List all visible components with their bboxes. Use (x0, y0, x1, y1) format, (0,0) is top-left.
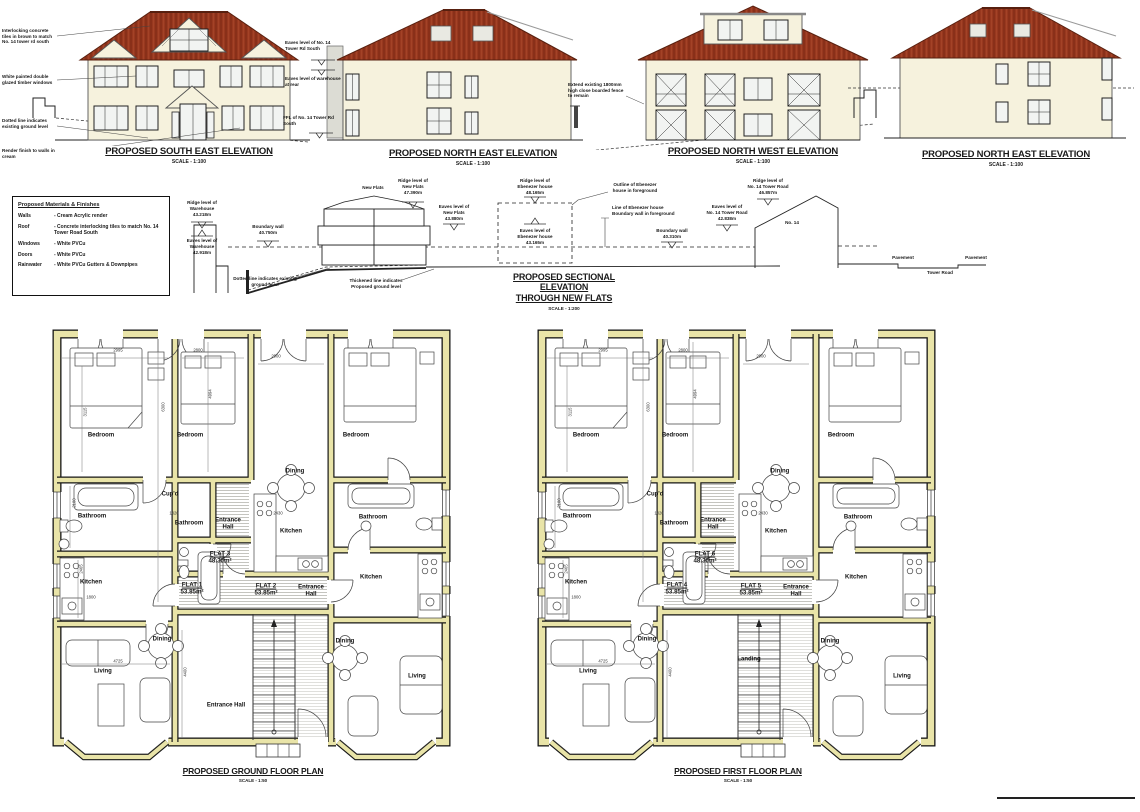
label-outline-ebenezer: Outline of Ebenezer house in foreground (613, 182, 658, 194)
ne1-building (309, 10, 583, 140)
legend-value: - White PVCu (54, 252, 165, 258)
room-label-cupboard: Cup'd (162, 492, 179, 499)
note-windows: White painted double glazed timber windo… (2, 74, 58, 85)
architectural-drawing-sheet: Interlocking concrete tiles in brown to … (0, 0, 1140, 812)
legend-item: Walls (18, 213, 54, 219)
north-west-elevation: Extend existing 1800mm high close boarde… (568, 0, 880, 172)
label-line-ebenezer: Line of Ebenezer house Boundary wall in … (612, 205, 675, 217)
room-label-dining: Dining (638, 637, 657, 644)
plan-title: PROPOSED GROUND FLOOR PLAN (48, 766, 458, 776)
south-east-elevation: Interlocking concrete tiles in brown to … (0, 0, 322, 172)
room-label-bathroom: Bathroom (175, 521, 203, 528)
note-eaves-warehouse: Eaves level of warehouse at rear (285, 76, 341, 87)
dimension: 2430 (273, 511, 282, 516)
north-west-elevation-drawing (568, 0, 880, 150)
materials-legend: Proposed Materials & Finishes Walls- Cre… (12, 196, 170, 296)
flat-label: FLAT 348.30m² (208, 551, 231, 566)
nw-building (570, 6, 874, 150)
room-label-bathroom: Bathroom (563, 514, 591, 521)
dimension: 4994 (693, 389, 698, 398)
note-existing-ground: Dotted line indicates existing ground le… (233, 276, 297, 288)
legend-item: Rainwater (18, 262, 54, 268)
legend-value: - White PVCu Gutters & Downpipes (54, 262, 165, 268)
room-label-kitchen: Kitchen (845, 575, 867, 582)
note-proposed-ground: Thickened line indicates Proposed ground… (349, 278, 402, 290)
room-label-bedroom: Bedroom (88, 433, 114, 440)
section-title-line2: THROUGH NEW FLATS (493, 293, 635, 303)
room-label-entrance-hall: Entrance Hall (783, 584, 809, 597)
label-eaves-warehouse: Eaves level of Warehouse 42.918m (187, 238, 217, 256)
dimension: 4400 (183, 667, 188, 676)
room-label-living: Living (94, 669, 112, 676)
room-label-kitchen: Kitchen (80, 580, 102, 587)
north-east-elevation-2-drawing (848, 0, 1140, 150)
label-no14: No. 14 (785, 220, 799, 226)
dimension: 6300 (161, 402, 166, 411)
ground-floor-plan-drawing (48, 312, 518, 762)
flat-name: FLAT 2 (254, 583, 277, 590)
room-label-kitchen: Kitchen (565, 580, 587, 587)
ne2-building (848, 8, 1134, 138)
dimension: 3115 (568, 407, 573, 416)
flat-name: FLAT 3 (208, 551, 231, 558)
legend-title: Proposed Materials & Finishes (18, 202, 165, 208)
flat-name: FLAT 6 (693, 551, 716, 558)
room-label-bathroom: Bathroom (660, 521, 688, 528)
room-label-dining: Dining (821, 639, 840, 646)
room-label-living: Living (408, 674, 426, 681)
room-label-bedroom: Bedroom (662, 433, 688, 440)
elevation-caption: PROPOSED NORTH WEST ELEVATION SCALE - 1:… (626, 146, 880, 165)
dimension: 2800 (193, 348, 202, 353)
label-eaves-ebenezer: Eaves level of Ebenezer house 43.165m (517, 228, 552, 246)
elevation-scale: SCALE - 1:100 (626, 159, 880, 165)
flat-area: 48.30m² (693, 558, 716, 565)
label-ridge-no14: Ridge level of No. 14 Tower Road 46.857m (747, 178, 788, 196)
room-label-kitchen: Kitchen (360, 575, 382, 582)
dimension: 6300 (646, 402, 651, 411)
room-label-cupboard: Cup'd (647, 492, 664, 499)
label-ridge-ebenezer: Ridge level of Ebenezer house 48.165m (517, 178, 552, 196)
room-label-bedroom: Bedroom (828, 433, 854, 440)
note-roof-tiles: Interlocking concrete tiles in brown to … (2, 28, 58, 45)
dimension: 4725 (113, 659, 122, 664)
room-label-dining: Dining (336, 639, 355, 646)
room-label-dining: Dining (153, 637, 172, 644)
room-label-landing: Landing (737, 657, 760, 664)
section-scale: SCALE - 1:200 (493, 306, 635, 311)
elevation-scale: SCALE - 1:100 (872, 162, 1140, 168)
label-tower-road: Tower Road (927, 270, 953, 276)
room-label-bedroom: Bedroom (177, 433, 203, 440)
legend-value: - White PVCu (54, 241, 165, 247)
dimension: 1820 (654, 511, 663, 516)
legend-row: Rainwater- White PVCu Gutters & Downpipe… (18, 262, 165, 268)
legend-row: Roof- Concrete interlocking tiles to mat… (18, 224, 165, 237)
flat-area: 48.30m² (208, 558, 231, 565)
dimension: 2465 (564, 564, 569, 573)
flat-label: FLAT 453.85m² (665, 582, 688, 597)
flat-name: FLAT 1 (180, 582, 203, 589)
dimension: 2100 (557, 498, 562, 507)
section-title-line1: PROPOSED SECTIONAL ELEVATION (493, 272, 635, 292)
label-ridge-warehouse: Ridge level of Warehouse 43.218m (187, 200, 217, 218)
note-eaves-no14: Eaves level of No. 14 Tower Rd South (285, 40, 341, 51)
section-caption: PROPOSED SECTIONAL ELEVATION THROUGH NEW… (493, 272, 635, 311)
flat-area: 53.85m² (665, 589, 688, 596)
label-boundary-wall-left: Boundary wall 40.750m (252, 224, 283, 236)
flat-label: FLAT 153.85m² (180, 582, 203, 597)
first-floor-plan-drawing (533, 312, 1003, 762)
elevation-title: PROPOSED NORTH EAST ELEVATION (872, 149, 1140, 160)
dimension: 1820 (169, 511, 178, 516)
flat-area: 53.85m² (739, 590, 762, 597)
dimension: 2995 (598, 348, 607, 353)
legend-row: Walls- Cream Acrylic render (18, 213, 165, 219)
plan-scale: SCALE - 1:50 (533, 778, 943, 783)
legend-value: - Concrete interlocking tiles to match N… (54, 224, 165, 237)
label-eaves-no14: Eaves level of No. 14 Tower Road 42.838m (706, 204, 747, 222)
dimension: 2900 (271, 354, 280, 359)
room-label-kitchen: Kitchen (280, 529, 302, 536)
room-label-kitchen: Kitchen (765, 529, 787, 536)
dimension: 3115 (83, 407, 88, 416)
plan-caption: PROPOSED FIRST FLOOR PLAN SCALE - 1:50 (533, 766, 943, 783)
plan-scale: SCALE - 1:50 (48, 778, 458, 783)
room-label-dining: Dining (771, 469, 790, 476)
flat-label: FLAT 253.85m² (254, 583, 277, 598)
label-pavement-1: Pavement (892, 255, 914, 261)
dimension: 2800 (678, 348, 687, 353)
label-eaves-flats: Eaves level of New Flats 43.880m (439, 204, 469, 222)
room-label-bedroom: Bedroom (573, 433, 599, 440)
flat-area: 53.85m² (254, 590, 277, 597)
label-pavement-2: Pavement (965, 255, 987, 261)
legend-item: Windows (18, 241, 54, 247)
elevation-title: PROPOSED NORTH WEST ELEVATION (626, 146, 880, 157)
room-label-bathroom: Bathroom (78, 514, 106, 521)
flat-name: FLAT 4 (665, 582, 688, 589)
note-ffl-no14: FFL of No. 14 Tower Rd South (283, 115, 339, 126)
legend-item: Doors (18, 252, 54, 258)
dimension: 4400 (668, 667, 673, 676)
dimension: 1800 (571, 595, 580, 600)
dimension: 1800 (86, 595, 95, 600)
section-level-markers (191, 197, 779, 248)
room-label-dining: Dining (286, 469, 305, 476)
legend-item: Roof (18, 224, 54, 237)
elevation-caption: PROPOSED NORTH EAST ELEVATION SCALE - 1:… (872, 149, 1140, 168)
dimension: 2900 (756, 354, 765, 359)
legend-value: - Cream Acrylic render (54, 213, 165, 219)
plan-caption: PROPOSED GROUND FLOOR PLAN SCALE - 1:50 (48, 766, 458, 783)
title-block-rule (997, 797, 1135, 799)
room-label-living: Living (579, 669, 597, 676)
north-east-elevation-2: PROPOSED NORTH EAST ELEVATION SCALE - 1:… (848, 0, 1140, 172)
ground-floor-plan: Bedroom Bedroom Bedroom Dining Cup'd Bat… (48, 312, 518, 812)
dimension: 2465 (79, 564, 84, 573)
legend-row: Windows- White PVCu (18, 241, 165, 247)
first-floor-plan: Bedroom Bedroom Bedroom Dining Cup'd Bat… (533, 312, 1003, 812)
flat-label: FLAT 553.85m² (739, 583, 762, 598)
room-label-entrance-hall: Entrance Hall (700, 517, 726, 530)
note-fence: Extend existing 1800mm high close boarde… (568, 82, 626, 99)
label-boundary-wall-right: Boundary wall 40.310m (656, 228, 687, 240)
room-label-entrance-hall: Entrance Hall (215, 517, 241, 530)
note-render: Render finish to walls in cream (2, 148, 58, 159)
dimension: 2995 (113, 348, 122, 353)
room-label-bathroom: Bathroom (844, 515, 872, 522)
plan-title: PROPOSED FIRST FLOOR PLAN (533, 766, 943, 776)
room-label-bedroom: Bedroom (343, 433, 369, 440)
dimension: 4994 (208, 389, 213, 398)
legend-row: Doors- White PVCu (18, 252, 165, 258)
flat-name: FLAT 5 (739, 583, 762, 590)
flat-area: 53.85m² (180, 589, 203, 596)
dimension: 2100 (72, 498, 77, 507)
label-ridge-flats: Ridge level of New Flats 47.390m (398, 178, 428, 196)
dimension: 4725 (598, 659, 607, 664)
room-label-bathroom: Bathroom (359, 515, 387, 522)
room-label-main-hall: Entrance Hall (207, 703, 245, 710)
label-new-flats: New Flats (362, 185, 383, 191)
se-building (33, 12, 310, 146)
dimension: 2430 (758, 511, 767, 516)
flat-label: FLAT 648.30m² (693, 551, 716, 566)
room-label-living: Living (893, 674, 911, 681)
note-ground-level: Dotted line indicates existing ground le… (2, 118, 58, 129)
room-label-entrance-hall: Entrance Hall (298, 584, 324, 597)
